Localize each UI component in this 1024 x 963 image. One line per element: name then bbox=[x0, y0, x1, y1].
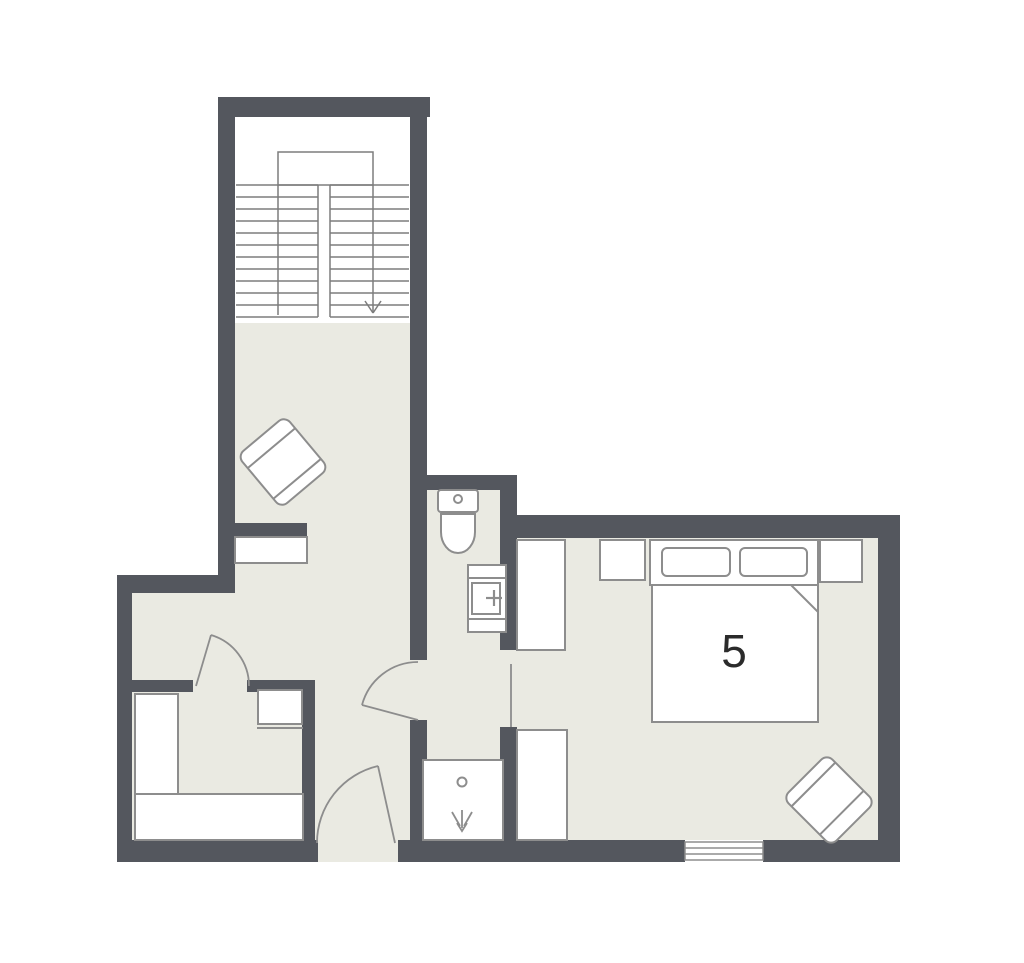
nightstand-left bbox=[600, 540, 645, 580]
bed-pillow-right bbox=[740, 548, 807, 576]
stair-treads-left bbox=[236, 185, 318, 317]
hallway-armchair bbox=[237, 416, 328, 508]
staircase bbox=[236, 152, 409, 317]
bathroom-fixtures bbox=[423, 490, 506, 840]
hallway-console-shelf bbox=[235, 537, 307, 563]
bed-pillow-left bbox=[662, 548, 730, 576]
storage-room-furniture bbox=[135, 690, 303, 840]
room-number-label: 5 bbox=[704, 628, 764, 674]
bedroom-wardrobe-lower bbox=[517, 730, 567, 840]
entry-door bbox=[317, 766, 395, 843]
nightstand-right bbox=[820, 540, 862, 582]
storage-room-door bbox=[196, 635, 249, 686]
storage-bottom-unit bbox=[135, 794, 303, 840]
bedroom-armchair bbox=[783, 754, 875, 846]
stair-center-divider bbox=[318, 185, 330, 317]
sink-icon bbox=[468, 565, 506, 632]
storage-wall-shelf bbox=[258, 690, 302, 724]
stairs-down-arrow-icon bbox=[365, 185, 381, 313]
bathroom-door bbox=[362, 662, 418, 720]
bedroom-window bbox=[685, 842, 763, 860]
stair-landing bbox=[278, 152, 373, 185]
stair-treads-right bbox=[330, 185, 409, 317]
floorplan-canvas: 5 bbox=[0, 0, 1024, 963]
bedroom-wardrobe-upper bbox=[517, 540, 565, 650]
shower bbox=[423, 760, 503, 840]
fixtures-overlay bbox=[0, 0, 1024, 963]
bedroom-furniture bbox=[517, 540, 875, 846]
toilet-icon bbox=[438, 490, 478, 553]
storage-tall-cabinet bbox=[135, 694, 178, 794]
hallway-furniture bbox=[235, 416, 329, 563]
